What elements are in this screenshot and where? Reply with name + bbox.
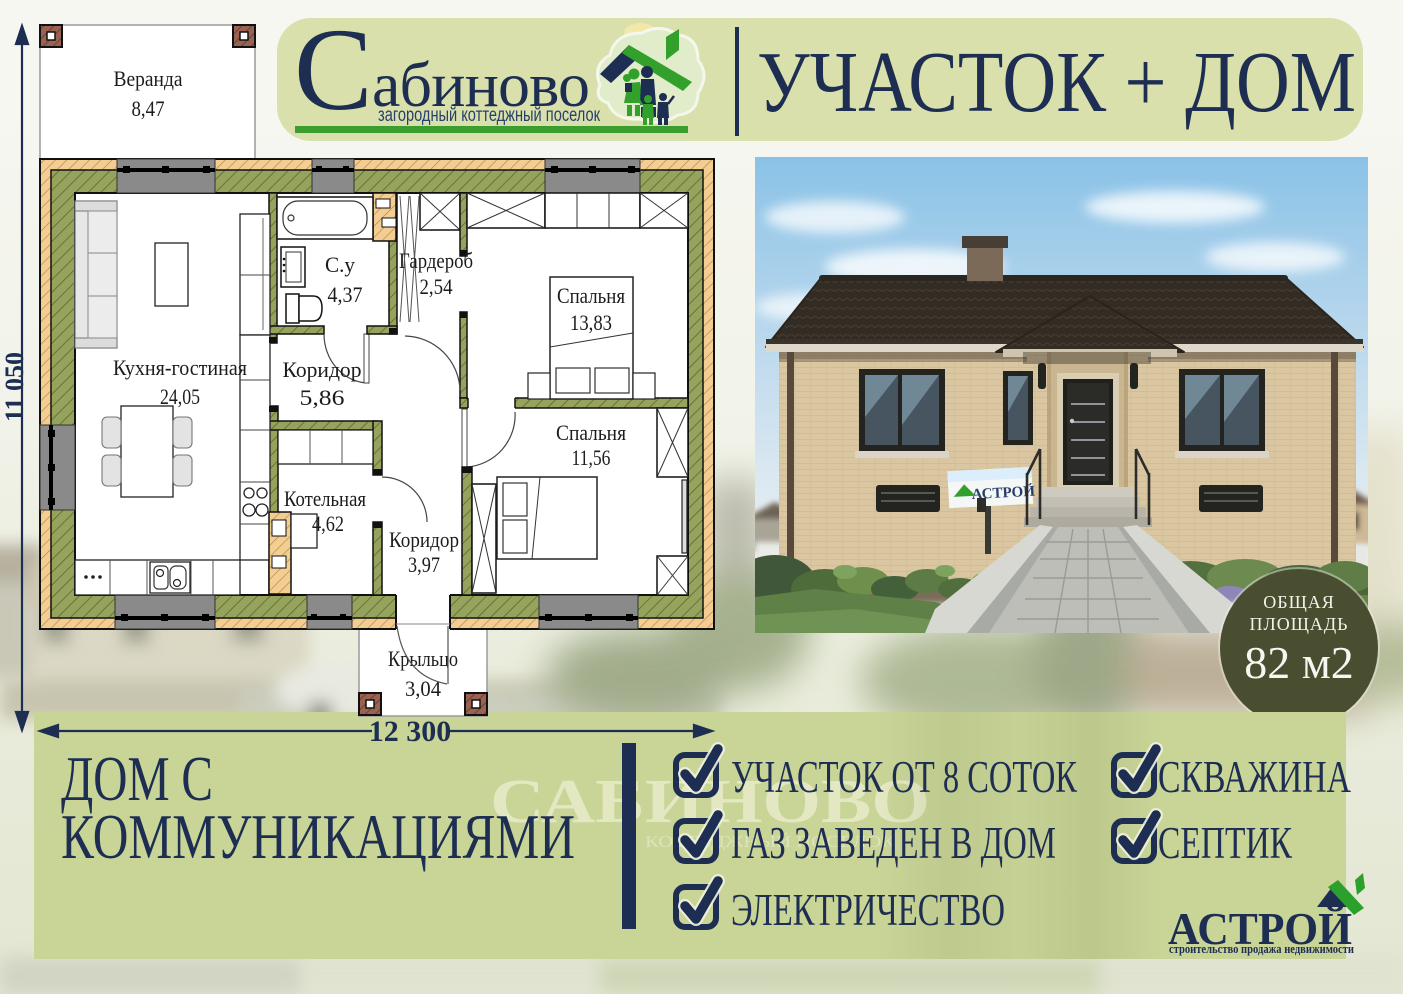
svg-text:4,37: 4,37 <box>328 282 363 307</box>
svg-text:Гардероб: Гардероб <box>399 248 473 273</box>
svg-text:13,83: 13,83 <box>570 310 612 335</box>
svg-text:11,56: 11,56 <box>572 445 611 470</box>
svg-text:Спальня: Спальня <box>556 420 626 445</box>
svg-text:3,04: 3,04 <box>405 676 441 701</box>
svg-text:Коридор: Коридор <box>389 527 459 552</box>
svg-text:Кухня-гостиная: Кухня-гостиная <box>113 355 247 380</box>
svg-text:4,62: 4,62 <box>312 511 344 536</box>
svg-text:24,05: 24,05 <box>160 384 200 409</box>
svg-text:Коридор: Коридор <box>283 357 362 382</box>
svg-text:8,47: 8,47 <box>132 96 165 121</box>
svg-text:Спальня: Спальня <box>557 283 625 308</box>
svg-text:2,54: 2,54 <box>420 274 453 299</box>
svg-text:Котельная: Котельная <box>284 486 366 511</box>
svg-text:С.у: С.у <box>325 252 355 277</box>
svg-text:5,86: 5,86 <box>300 385 345 410</box>
svg-text:12 300: 12 300 <box>369 715 452 748</box>
svg-text:Веранда: Веранда <box>114 66 183 91</box>
svg-text:3,97: 3,97 <box>408 552 440 577</box>
svg-text:11 050: 11 050 <box>0 352 29 422</box>
